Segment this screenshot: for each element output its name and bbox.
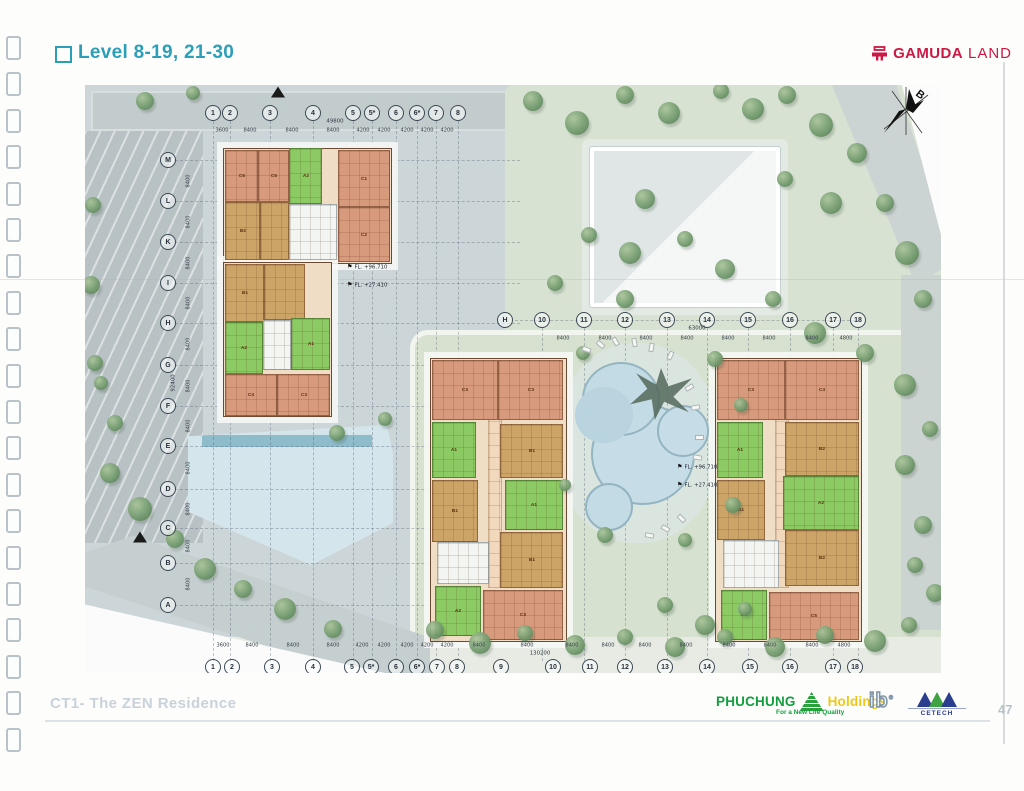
tree (876, 194, 894, 212)
tree (742, 98, 764, 120)
dimension-label: 4200 (441, 642, 454, 648)
tree (738, 602, 752, 616)
tree (715, 259, 735, 279)
dimension-label: 8400 (246, 642, 259, 648)
phuchung-wordmark: PHUCHUNG (716, 694, 796, 709)
dimension-label: 8400 (185, 379, 191, 392)
dimension-label: 8400 (326, 642, 339, 648)
unit-label: C1 (361, 176, 367, 181)
grid-bubble: 12 (617, 659, 633, 673)
tree (922, 421, 938, 437)
unit-label: C6 (238, 174, 244, 179)
dimension-label: 8400 (185, 338, 191, 351)
grid-line (515, 320, 860, 321)
dimension-label: 8400 (764, 642, 777, 648)
unit-block: C2 (338, 207, 390, 262)
site-plan: B 123455*66*7836008400840084004200420042… (85, 85, 941, 673)
tree (274, 598, 296, 620)
unit-block: C5 (258, 150, 289, 202)
tree (324, 620, 342, 638)
unit-label: C3 (748, 388, 754, 393)
unit-label: C3 (300, 393, 306, 398)
unit-block: C6 (225, 150, 258, 202)
tree (914, 290, 932, 308)
tree (100, 463, 120, 483)
grid-bubble: D (160, 481, 176, 497)
dimension-label: 8400 (473, 642, 486, 648)
grid-bubble: 2 (222, 105, 238, 121)
tree (635, 189, 655, 209)
grid-bubble: 7 (429, 659, 445, 673)
dimension-label: 4200 (441, 127, 454, 133)
tree (619, 242, 641, 264)
unit-block: B1 (717, 480, 765, 540)
grid-bubble: 2 (224, 659, 240, 673)
grid-line (213, 121, 214, 661)
tree (617, 629, 633, 645)
grid-bubble: A (160, 597, 176, 613)
tree (136, 92, 154, 110)
grid-bubble: G (160, 357, 176, 373)
dimension-label: 4200 (400, 642, 413, 648)
tree (581, 227, 597, 243)
grid-bubble: 1 (205, 105, 221, 121)
tree (378, 412, 392, 426)
unit-block: A2 (783, 476, 859, 530)
grid-bubble: 13 (657, 659, 673, 673)
tree (856, 344, 874, 362)
footer-rule (45, 720, 990, 722)
grid-bubble: 15 (740, 312, 756, 328)
grid-bubble: 6 (388, 105, 404, 121)
unit-block: A1 (717, 422, 763, 478)
page-title-row: Level 8-19, 21-30 (55, 42, 234, 64)
level-annotation: ⚑FL. +27.410 (347, 281, 387, 288)
grid-bubble: M (160, 152, 176, 168)
unit-label: A2 (818, 501, 824, 506)
unit-label: C3 (520, 613, 526, 618)
dimension-label: 8400 (681, 335, 694, 341)
tree (234, 580, 252, 598)
tree (707, 351, 723, 367)
grid-bubble: 3 (264, 659, 280, 673)
phuchung-tagline: For a New Life Quality (776, 709, 844, 716)
dimension-label: 3600 (215, 127, 228, 133)
unit-block (263, 320, 291, 370)
unit-block: C3 (498, 360, 563, 420)
unit-label: A1 (451, 448, 457, 453)
unit-label: A2 (455, 609, 461, 614)
unit-label: B1 (452, 509, 458, 514)
dimension-label: 4200 (356, 127, 369, 133)
tree (695, 615, 715, 635)
scan-artifact-line (0, 279, 1024, 280)
grid-bubble: 10 (545, 659, 561, 673)
dimension-label: 8400 (185, 578, 191, 591)
tree (329, 425, 345, 441)
unit-label: B2 (239, 229, 245, 234)
tree (765, 291, 781, 307)
grid-bubble: 11 (582, 659, 598, 673)
unit-label: C2 (361, 232, 367, 237)
binder-hole (6, 109, 21, 133)
dimension-label: 8400 (680, 642, 693, 648)
grid-bubble: 5 (344, 659, 360, 673)
page-number: 47 (998, 702, 1012, 717)
dimension-label: 4200 (421, 642, 434, 648)
unit-block: C3 (432, 360, 498, 420)
grid-bubble: B (160, 555, 176, 571)
dimension-label: 4200 (378, 127, 391, 133)
pool-right-circle (657, 405, 709, 457)
grid-bubble: C (160, 520, 176, 536)
grid-bubble: 13 (659, 312, 675, 328)
dimension-label: 8400 (598, 335, 611, 341)
grid-bubble: 17 (825, 659, 841, 673)
binder-hole (6, 36, 21, 60)
unit-label: B2 (819, 556, 825, 561)
unit-block: A1 (505, 480, 563, 530)
binder-hole (6, 436, 21, 460)
gamuda-wordmark: GAMUDA (893, 45, 963, 62)
unit-label: B2 (819, 447, 825, 452)
binder-hole (6, 72, 21, 96)
dimension-label: 4800 (838, 642, 851, 648)
grid-bubble: 12 (617, 312, 633, 328)
binder-hole (6, 728, 21, 752)
benchmark-flag-icon: ⚑ (677, 481, 683, 488)
grid-line (396, 121, 397, 661)
unit-label: C5 (270, 174, 276, 179)
tree (186, 86, 200, 100)
grid-bubble: 5 (345, 105, 361, 121)
grid-bubble: 10 (534, 312, 550, 328)
binder-hole (6, 509, 21, 533)
unit-block: C5 (769, 592, 859, 640)
grid-bubble: F (160, 398, 176, 414)
tree (678, 533, 692, 547)
grid-bubble: K (160, 234, 176, 250)
grid-bubble: 17 (825, 312, 841, 328)
benchmark-flag-icon: ⚑ (347, 281, 353, 288)
tree (547, 275, 563, 291)
dimension-label: 8400 (185, 539, 191, 552)
grid-bubble: 4 (305, 659, 321, 673)
tree (914, 516, 932, 534)
unit-block: C1 (338, 150, 390, 207)
unit-block: B1 (432, 480, 478, 542)
binder-hole (6, 546, 21, 570)
unit-block (260, 202, 289, 260)
dimension-label: 4200 (377, 642, 390, 648)
binder-hole (6, 218, 21, 242)
grid-bubble: 18 (847, 659, 863, 673)
unit-label: B1 (241, 291, 247, 296)
tree (565, 111, 589, 135)
dimension-total: 49800 (326, 118, 343, 124)
grid-bubble: 1 (205, 659, 221, 673)
footer-project-title: CT1- The ZEN Residence (50, 695, 236, 712)
grid-bubble: 5* (363, 659, 379, 673)
unit-block: C4 (225, 374, 277, 416)
binder-hole (6, 182, 21, 206)
unit-block: B2 (225, 202, 260, 260)
dimension-label: 8400 (805, 642, 818, 648)
level-annotation: ⚑FL. +27.410 (677, 481, 717, 488)
tree (926, 584, 941, 602)
unit-block: B1 (500, 532, 563, 588)
dimension-label: 8400 (805, 335, 818, 341)
binder-hole (6, 254, 21, 278)
dimension-total: 63000 (688, 325, 705, 331)
tree (677, 231, 693, 247)
tree (778, 86, 796, 104)
dimension-label: 8400 (639, 642, 652, 648)
dimension-total: 92400 (170, 374, 176, 391)
grid-bubble: H (160, 315, 176, 331)
tree (894, 374, 916, 396)
dimension-label: 8400 (565, 642, 578, 648)
grid-bubble: H (497, 312, 513, 328)
pool-lounger (695, 435, 704, 440)
binder-hole (6, 400, 21, 424)
tree (864, 630, 886, 652)
tree (658, 102, 680, 124)
unit-block: C4 (785, 360, 859, 420)
unit-block (437, 542, 489, 584)
gamuda-land-logo: GAMUDA LAND (871, 45, 1012, 62)
tree (895, 455, 915, 475)
tree (847, 143, 867, 163)
tree (777, 171, 793, 187)
unit-label: B1 (528, 558, 534, 563)
grid-bubble: 14 (699, 659, 715, 673)
ib-logo: ib® (869, 690, 894, 713)
grid-line (707, 328, 708, 661)
title-square-icon (55, 46, 72, 63)
tree (725, 497, 741, 513)
dimension-label: 4200 (355, 642, 368, 648)
dimension-label: 8400 (763, 335, 776, 341)
tree (734, 398, 748, 412)
dimension-label: 4200 (420, 127, 433, 133)
level-annotation: ⚑FL. +96.710 (677, 463, 717, 470)
tree (85, 197, 101, 213)
binder-hole (6, 291, 21, 315)
unit-label: C4 (248, 393, 254, 398)
page-title: Level 8-19, 21-30 (78, 42, 234, 64)
dimension-label: 4200 (400, 127, 413, 133)
grid-bubble: 18 (850, 312, 866, 328)
unit-block: C3 (277, 374, 330, 416)
level-annotation: ⚑FL. +96.710 (347, 263, 387, 270)
compass-icon (880, 87, 934, 137)
section-marker-top (271, 87, 285, 98)
north-arrow: B (880, 87, 934, 142)
binder-hole (6, 473, 21, 497)
grid-bubble: 6 (388, 659, 404, 673)
grid-bubble: I (160, 275, 176, 291)
tree (559, 479, 571, 491)
unit-label: B1 (528, 449, 534, 454)
unit-block: A2 (289, 148, 322, 204)
grid-line (417, 121, 418, 661)
grid-line (584, 328, 585, 661)
dimension-label: 8400 (722, 642, 735, 648)
cetech-logo: CETECH (908, 692, 966, 717)
unit-block (723, 540, 779, 588)
unit-block: A1 (291, 318, 330, 370)
unit-label: A1 (307, 342, 313, 347)
binder-hole (6, 618, 21, 642)
tree (128, 497, 152, 521)
unit-label: A1 (737, 448, 743, 453)
grid-bubble: 6* (409, 105, 425, 121)
page-edge-shadow (1003, 62, 1005, 744)
binder-hole (6, 582, 21, 606)
benchmark-flag-icon: ⚑ (347, 263, 353, 270)
dimension-label: 8400 (521, 642, 534, 648)
tree (616, 290, 634, 308)
grid-bubble: 15 (742, 659, 758, 673)
adjacent-building-roof (590, 147, 780, 307)
unit-block: A1 (432, 422, 476, 478)
tree (657, 597, 673, 613)
tree (616, 86, 634, 104)
benchmark-flag-icon: ⚑ (677, 463, 683, 470)
unit-label: A2 (241, 346, 247, 351)
tree (426, 621, 444, 639)
unit-block (264, 264, 305, 320)
unit-block: A2 (225, 322, 263, 374)
tree (523, 91, 543, 111)
dimension-label: 8400 (185, 420, 191, 433)
tree (87, 355, 103, 371)
tree (94, 376, 108, 390)
dimension-label: 3600 (216, 642, 229, 648)
binder-hole (6, 145, 21, 169)
unit-label: C3 (462, 388, 468, 393)
dimension-label: 8400 (185, 215, 191, 228)
unit-block: B1 (225, 264, 264, 322)
binder-hole (6, 364, 21, 388)
dimension-label: 8400 (185, 256, 191, 269)
section-marker-left (133, 532, 147, 543)
grid-bubble: 7 (428, 105, 444, 121)
unit-label: C4 (819, 388, 825, 393)
right-road (901, 275, 941, 630)
dimension-label: 8400 (185, 461, 191, 474)
grid-bubble: 9 (493, 659, 509, 673)
dimension-label: 8400 (185, 174, 191, 187)
dimension-label: 8400 (601, 642, 614, 648)
grid-bubble: 3 (262, 105, 278, 121)
pool-left-circle (575, 387, 633, 443)
tree (194, 558, 216, 580)
grid-bubble: 4 (305, 105, 321, 121)
dimension-label: 8400 (185, 297, 191, 310)
tree (820, 192, 842, 214)
tree (816, 626, 834, 644)
dimension-label: 8400 (185, 502, 191, 515)
grid-bubble: 6* (409, 659, 425, 673)
tree (809, 113, 833, 137)
tree (895, 241, 919, 265)
tree (517, 625, 533, 641)
grid-bubble: E (160, 438, 176, 454)
tree (907, 557, 923, 573)
gamuda-land-text: LAND (968, 45, 1012, 62)
unit-block (289, 204, 337, 260)
unit-block: B2 (785, 530, 859, 586)
dimension-label: 8400 (557, 335, 570, 341)
unit-block: B1 (500, 424, 563, 478)
pool-bottom-circle (585, 483, 633, 531)
scanned-page: Level 8-19, 21-30 GAMUDA LAND (0, 0, 1024, 791)
unit-label: C3 (527, 388, 533, 393)
dimension-label: 8400 (244, 127, 257, 133)
unit-label: C5 (811, 614, 817, 619)
grid-bubble: 16 (782, 659, 798, 673)
grid-bubble: 16 (782, 312, 798, 328)
unit-block: B2 (785, 422, 859, 476)
binder-hole (6, 691, 21, 715)
dimension-label: 8400 (286, 642, 299, 648)
gamuda-icon (871, 46, 888, 61)
tree (597, 527, 613, 543)
dimension-label: 4800 (839, 335, 852, 341)
binder-hole (6, 327, 21, 351)
dimension-label: 8400 (721, 335, 734, 341)
grid-bubble: L (160, 193, 176, 209)
grid-bubble: 5* (364, 105, 380, 121)
cetech-triangles-icon (908, 692, 966, 707)
cetech-wordmark: CETECH (908, 708, 966, 717)
grid-bubble: 8 (450, 105, 466, 121)
dimension-total: 130200 (530, 650, 551, 656)
dimension-label: 8400 (285, 127, 298, 133)
unit-label: A1 (531, 503, 537, 508)
tree (901, 617, 917, 633)
grid-bubble: 8 (449, 659, 465, 673)
grid-bubble: 11 (576, 312, 592, 328)
binder-hole (6, 655, 21, 679)
unit-label: A2 (302, 174, 308, 179)
dimension-label: 8400 (640, 335, 653, 341)
unit-block: C3 (717, 360, 785, 420)
tree (107, 415, 123, 431)
dimension-label: 8400 (327, 127, 340, 133)
